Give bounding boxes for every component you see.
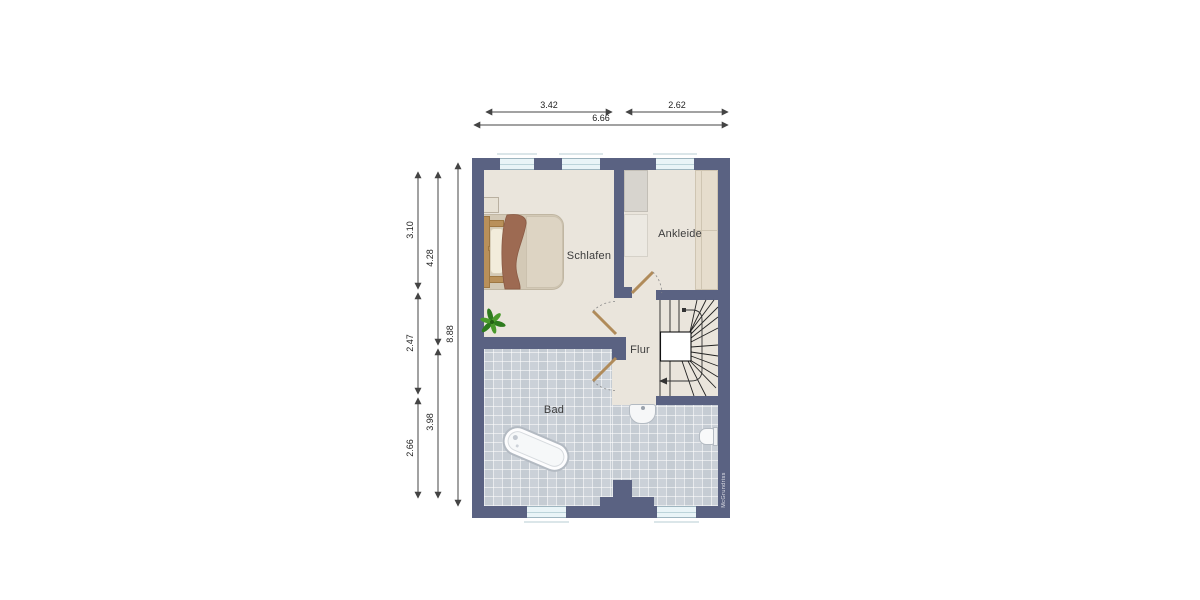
room-label-bad: Bad	[534, 404, 574, 416]
window-top-2	[562, 158, 600, 170]
window-sill	[497, 153, 537, 155]
nightstand	[483, 197, 499, 213]
floorplan-canvas: Schlafen Ankleide Flur Bad 3.42 2.62 6.6…	[0, 0, 1200, 600]
window-top-1	[500, 158, 534, 170]
wall-under-stairs	[656, 396, 730, 405]
dim-top-left: 3.42	[529, 100, 569, 110]
floor-bad-tiles	[484, 349, 612, 506]
window-top-3	[656, 158, 694, 170]
wall-left	[472, 158, 484, 518]
wall-schlafen-bad	[484, 337, 614, 349]
sink-faucet	[641, 406, 645, 410]
chimney-base	[600, 497, 654, 506]
window-sill	[653, 153, 697, 155]
window-sill	[654, 521, 699, 523]
window-sill	[559, 153, 603, 155]
dim-left-bottom: 2.66	[405, 428, 415, 468]
wall-ankleide-bottom	[656, 290, 730, 300]
window-bottom-2	[657, 506, 696, 518]
wall-divider-schlafen-ankleide	[614, 170, 624, 290]
bed-mattress	[526, 216, 563, 288]
dim-left-top: 3.10	[405, 210, 415, 250]
dim-inner-bottom: 3.98	[425, 402, 435, 442]
bed-pillow	[490, 228, 504, 274]
room-label-flur: Flur	[620, 344, 660, 356]
bed-headboard-arm-bottom	[489, 276, 504, 283]
dim-top-right: 2.62	[657, 100, 697, 110]
wardrobe-left-top	[624, 170, 648, 212]
bed-headboard-arm-top	[489, 220, 504, 227]
dim-top-total: 6.66	[581, 113, 621, 123]
dim-left-total: 8.88	[445, 314, 455, 354]
dim-left-middle: 2.47	[405, 323, 415, 363]
room-label-schlafen: Schlafen	[559, 250, 619, 262]
window-sill	[524, 521, 569, 523]
wall-divider-foot	[614, 287, 632, 298]
watermark: McGrundriss	[720, 463, 728, 517]
window-bottom-1	[527, 506, 566, 518]
wardrobe-left-bottom	[624, 214, 648, 257]
dim-inner-top: 4.28	[425, 238, 435, 278]
room-label-ankleide: Ankleide	[650, 228, 710, 240]
